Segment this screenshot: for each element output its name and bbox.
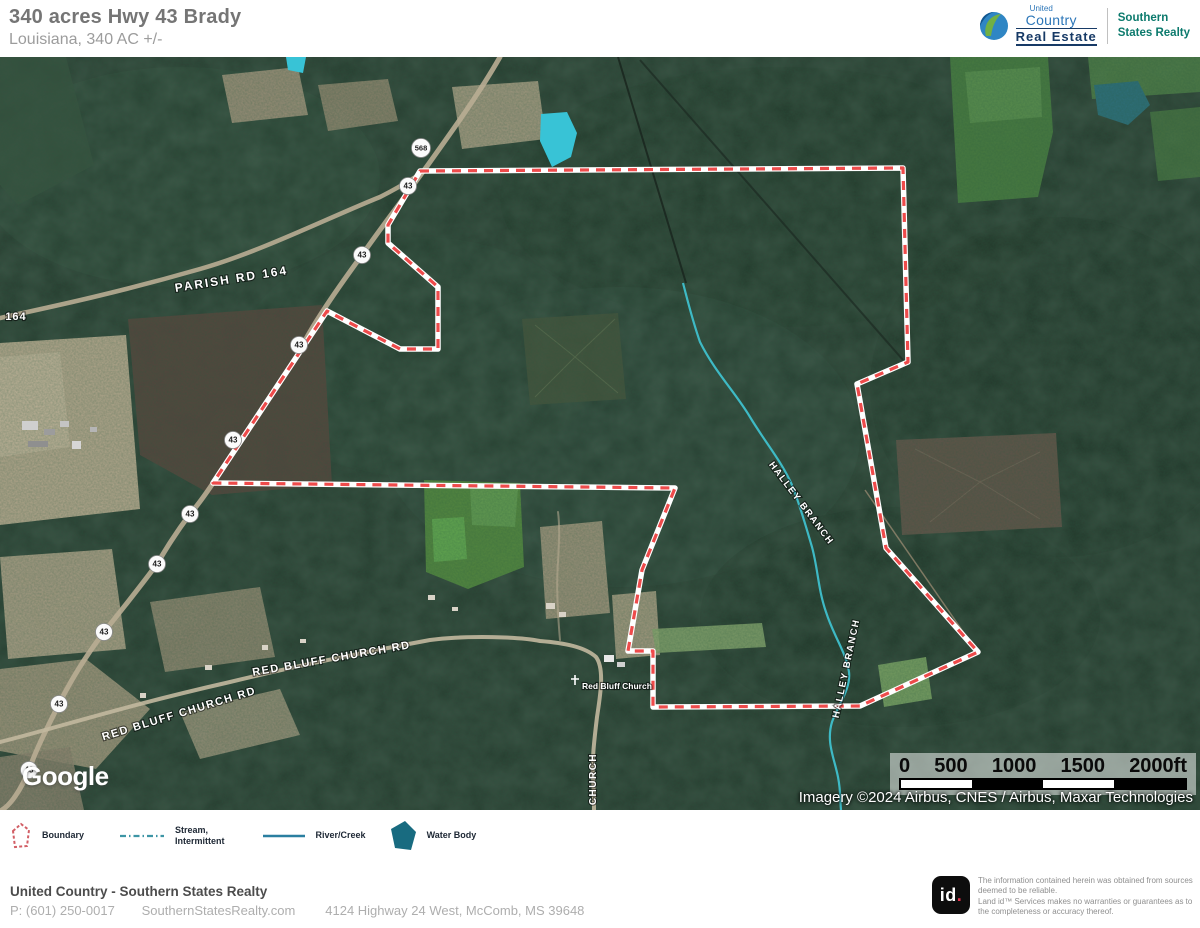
property-flyer-page: 340 acres Hwy 43 Brady Louisiana, 340 AC… [0,0,1200,928]
svg-text:43: 43 [358,251,367,260]
stream-intermittent-icon [118,832,166,840]
company-name: United Country - Southern States Realty [10,884,267,899]
header: 340 acres Hwy 43 Brady Louisiana, 340 AC… [0,0,1200,57]
land-id-logo: id. [932,876,970,914]
highway-shield: 43 [354,247,371,264]
legend-item-stream: Stream, Intermittent [118,825,225,848]
disclaimer-text: The information contained herein was obt… [978,876,1196,918]
map-viewport: 568 43 43 43 43 43 43 43 43 43 PARISH RD… [0,57,1200,810]
highway-shield: 568 [412,139,431,158]
scale-tick-labels: 0 500 1000 1500 2000ft [899,756,1187,777]
southern-states-realty-logo: Southern States Realty [1118,11,1190,40]
svg-text:43: 43 [186,510,195,519]
river-creek-icon [261,832,307,840]
svg-text:43: 43 [100,628,109,637]
road-label-164: 164 [5,311,26,323]
phone-number: P: (601) 250-0017 [10,903,138,918]
svg-text:43: 43 [153,560,162,569]
legend: Boundary Stream, Intermittent River/Cree… [0,810,1200,862]
brand-country: Country [1026,13,1097,27]
page-title: 340 acres Hwy 43 Brady [9,6,241,29]
svg-text:568: 568 [415,144,428,153]
legend-item-boundary: Boundary [9,822,84,850]
highway-shield: 43 [182,506,199,523]
highway-shield: 43 [225,432,242,449]
legend-item-river: River/Creek [261,830,366,841]
brand-area: United Country Real Estate Southern Stat… [977,5,1190,46]
highway-shield: 43 [51,696,68,713]
highway-shield: 43 [149,556,166,573]
svg-text:43: 43 [55,700,64,709]
svg-text:43: 43 [229,436,238,445]
svg-text:43: 43 [404,182,413,191]
contact-row: P: (601) 250-0017 SouthernStatesRealty.c… [10,903,584,918]
water-body-icon [388,820,418,852]
footer: United Country - Southern States Realty … [0,862,1200,928]
boundary-icon [9,822,33,850]
poi-label-red-bluff-church: Red Bluff Church [582,681,652,691]
road-label-church-vertical: CHURCH [588,753,599,805]
page-subtitle: Louisiana, 340 AC +/- [9,31,162,49]
brand-real-estate: Real Estate [1016,28,1097,46]
highway-shield: 43 [400,178,417,195]
highway-shield: 43 [96,624,113,641]
imagery-attribution: Imagery ©2024 Airbus, CNES / Airbus, Max… [799,789,1193,806]
united-country-globe-icon [977,9,1011,43]
united-country-logo: United Country Real Estate [977,5,1097,46]
svg-text:43: 43 [295,341,304,350]
legend-item-water-body: Water Body [388,820,477,852]
office-address: 4124 Highway 24 West, McComb, MS 39648 [325,903,584,918]
highway-shield: 43 [291,337,308,354]
brand-divider [1107,8,1108,44]
google-logo: Google [22,761,109,792]
satellite-map: 568 43 43 43 43 43 43 43 43 43 PARISH RD… [0,57,1200,810]
website-link[interactable]: SouthernStatesRealty.com [142,903,322,918]
land-id-attribution: id. The information contained herein was… [932,876,1196,918]
